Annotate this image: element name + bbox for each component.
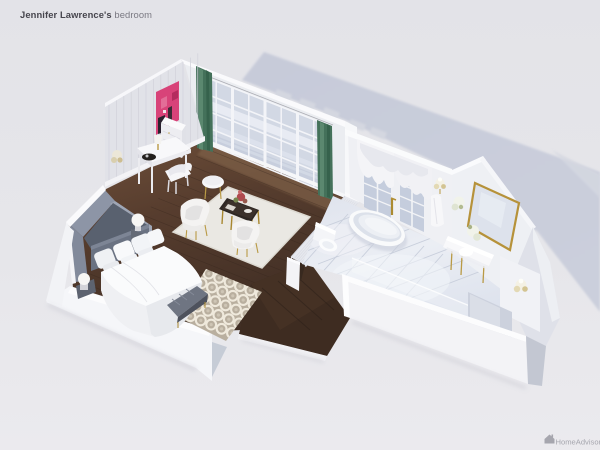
svg-text:Jennifer Lawrence's bedroom: Jennifer Lawrence's bedroom <box>20 9 152 20</box>
svg-text:HomeAdvisor: HomeAdvisor <box>556 438 600 447</box>
